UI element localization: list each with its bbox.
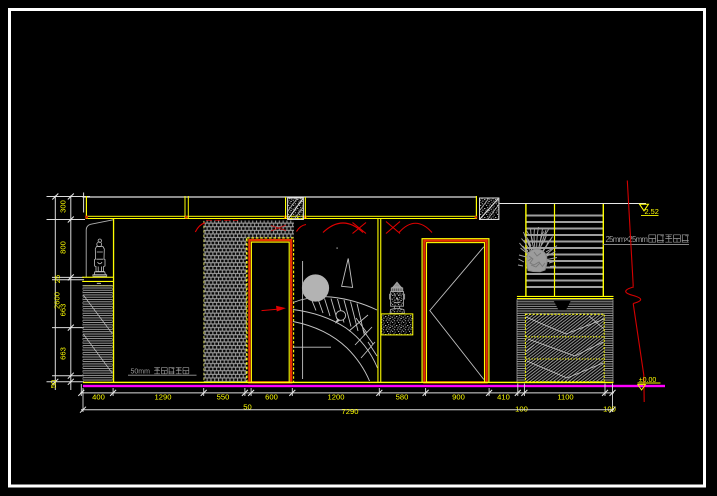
svg-text:1100: 1100 bbox=[557, 392, 573, 401]
svg-text:580: 580 bbox=[396, 392, 409, 401]
svg-text:800: 800 bbox=[59, 241, 68, 254]
svg-text:400: 400 bbox=[92, 392, 105, 401]
svg-text:1200: 1200 bbox=[328, 392, 345, 401]
svg-text:550: 550 bbox=[217, 392, 230, 401]
svg-text:663: 663 bbox=[59, 304, 68, 317]
svg-text:25mm×25mm: 25mm×25mm bbox=[606, 235, 649, 244]
svg-text:663: 663 bbox=[59, 347, 68, 360]
svg-text:1290: 1290 bbox=[155, 392, 172, 401]
svg-text:25: 25 bbox=[53, 275, 62, 283]
svg-text:600: 600 bbox=[265, 392, 278, 401]
svg-text:2.52: 2.52 bbox=[645, 207, 659, 216]
svg-text:50mm: 50mm bbox=[131, 369, 151, 376]
svg-text:300: 300 bbox=[59, 200, 68, 213]
svg-text:100: 100 bbox=[515, 405, 528, 414]
svg-text:50: 50 bbox=[49, 380, 58, 388]
svg-text:7290: 7290 bbox=[342, 407, 359, 416]
svg-text:900: 900 bbox=[452, 392, 465, 401]
svg-text:410: 410 bbox=[497, 392, 510, 401]
svg-text:50: 50 bbox=[243, 403, 251, 412]
